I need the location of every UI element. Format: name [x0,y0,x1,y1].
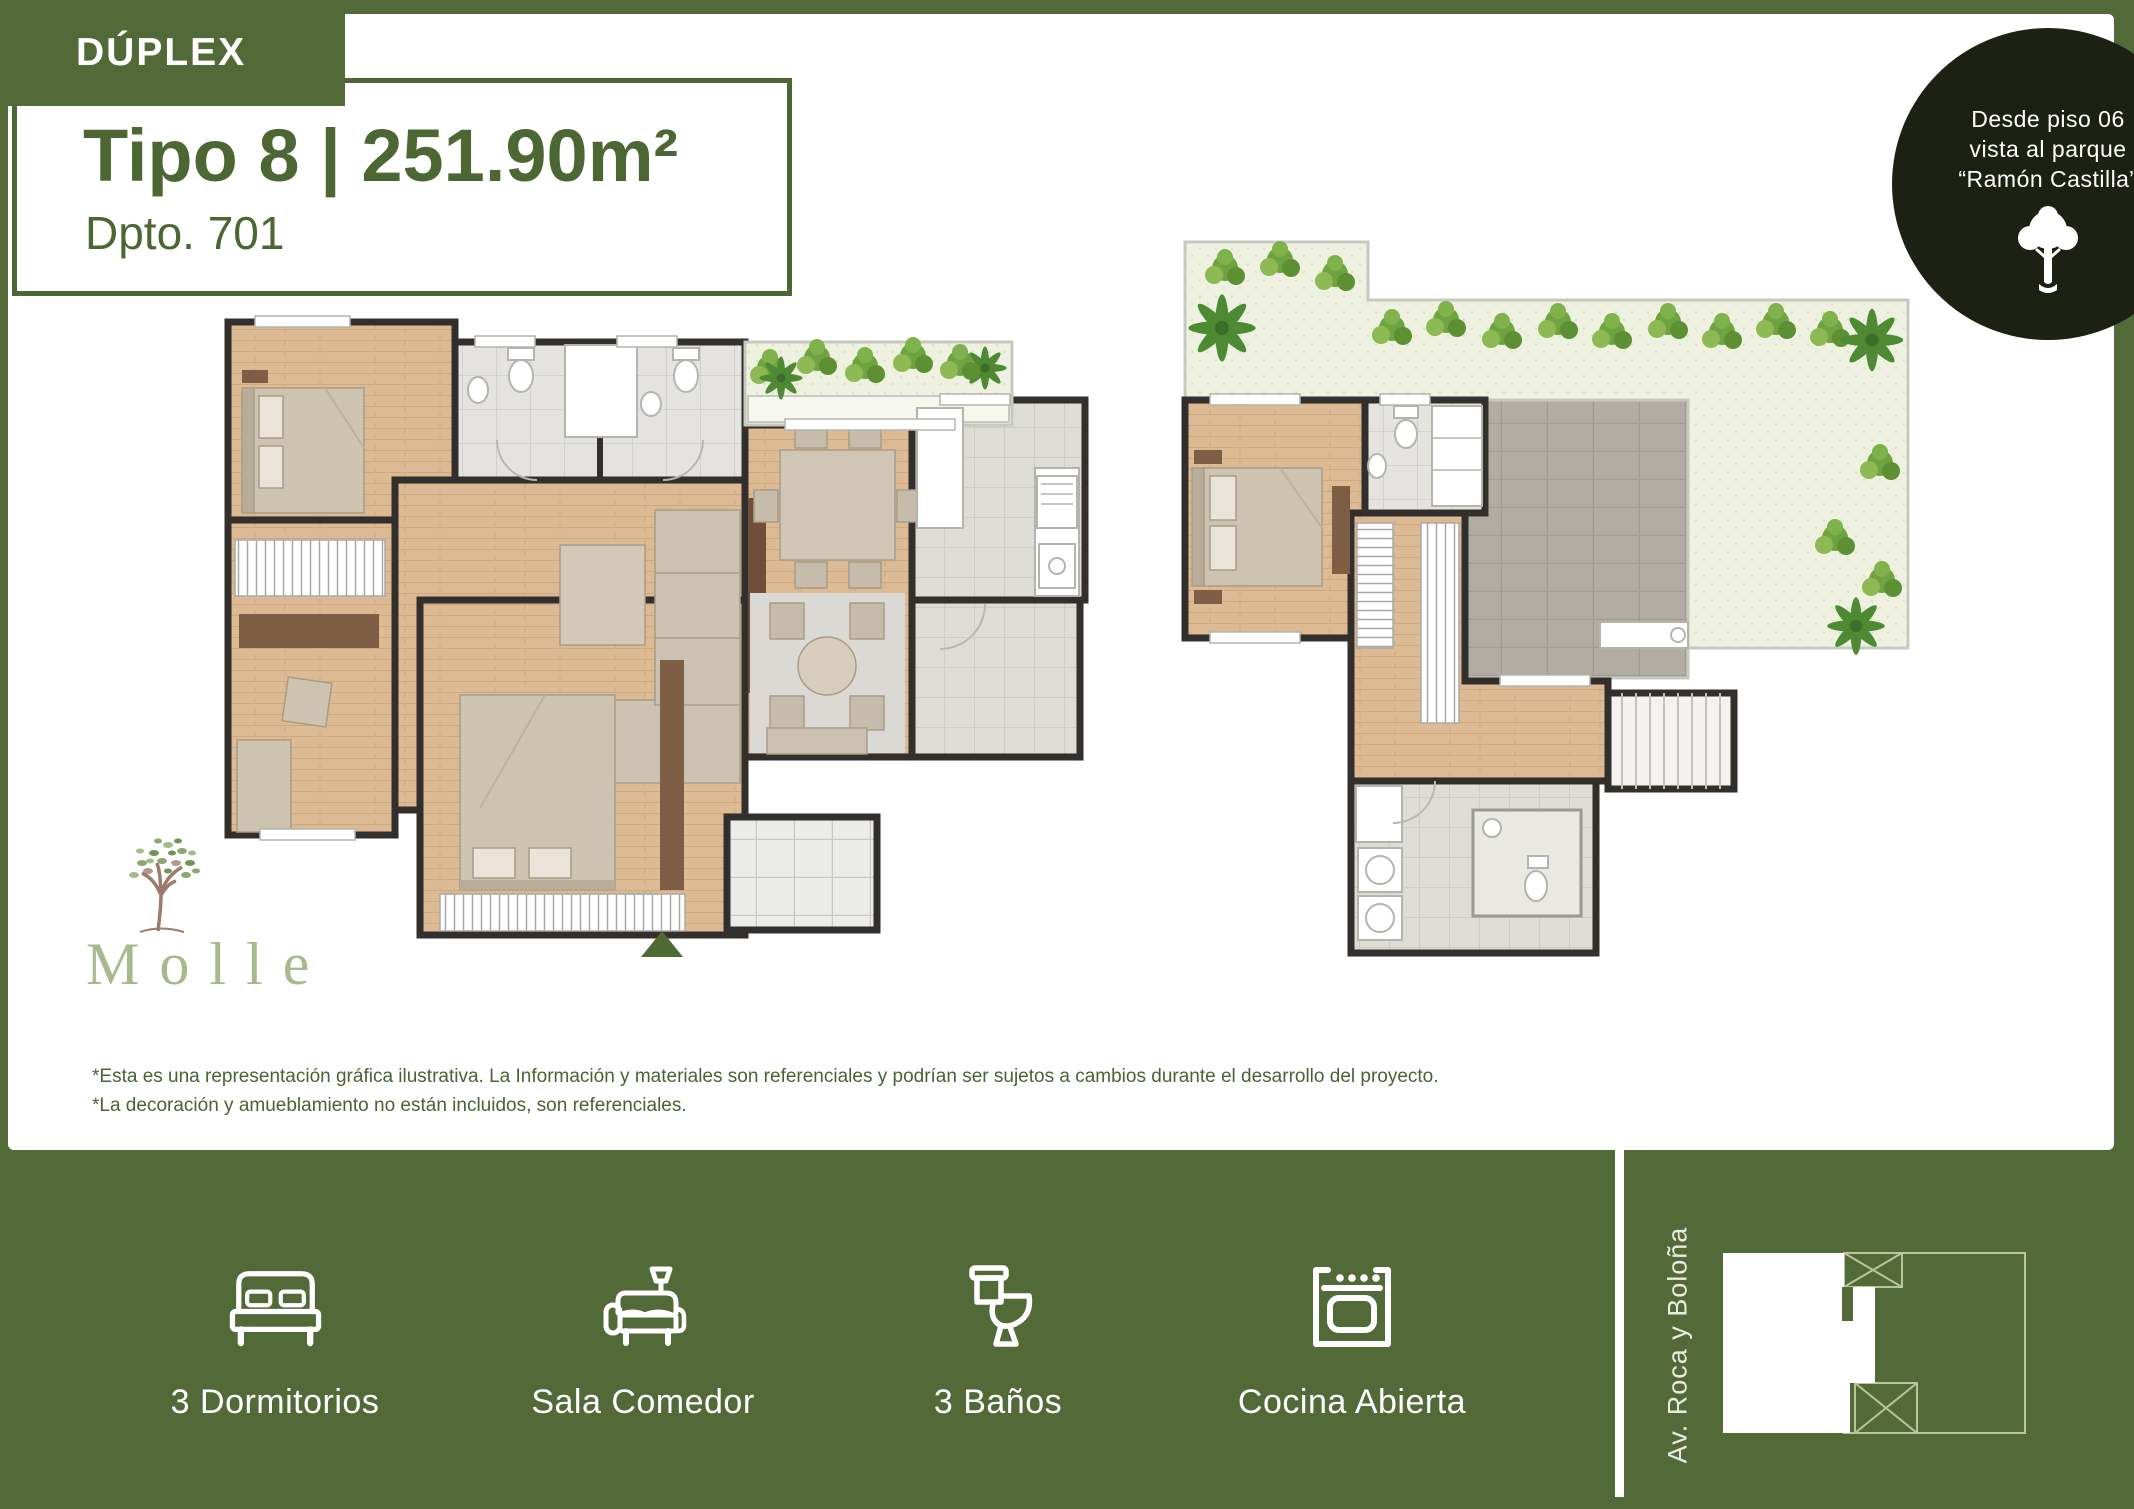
location-map [1723,1251,2033,1442]
disclaimer: *Esta es una representación gráfica ilus… [92,1062,1439,1120]
badge-line-1: Desde piso 06 [1892,104,2134,134]
amenity-label: Sala Comedor [463,1383,823,1422]
page-title: Tipo 8 | 251.90m² [83,113,787,198]
toilet-icon [818,1255,1178,1365]
floor-plan-level-1 [228,316,1085,957]
disclaimer-line-1: *Esta es una representación gráfica ilus… [92,1062,1439,1091]
brochure-page: DÚPLEX Tipo 8 | 251.90m² Dpto. 701 Desde… [0,0,2134,1509]
amenity-bathrooms: 3 Baños [818,1255,1178,1422]
badge-line-3: “Ramón Castilla” [1892,164,2134,194]
stove-icon [1172,1255,1532,1365]
category-banner: DÚPLEX [0,0,345,106]
floor-plan-level-2 [1185,241,1908,953]
category-label: DÚPLEX [0,0,345,75]
badge-line-2: vista al parque [1892,134,2134,164]
amenity-label: Cocina Abierta [1172,1383,1532,1422]
tree-icon [2015,206,2081,294]
amenity-label: 3 Baños [818,1383,1178,1422]
amenity-kitchen: Cocina Abierta [1172,1255,1532,1422]
park-view-badge: Desde piso 06 vista al parque “Ramón Cas… [1892,28,2134,340]
amenity-bedrooms: 3 Dormitorios [95,1255,455,1422]
street-label: Av. Roca y Boloña [1663,1227,1694,1464]
amenity-living-dining: Sala Comedor [463,1255,823,1422]
bed-icon [95,1255,455,1365]
band-divider [1615,1150,1624,1497]
brand-name: Molle [86,930,329,999]
unit-number: Dpto. 701 [85,206,787,260]
brand-tree-logo [129,839,200,933]
sofa-icon [463,1255,823,1365]
title-box: Tipo 8 | 251.90m² Dpto. 701 [12,78,792,296]
disclaimer-line-2: *La decoración y amueblamiento no están … [92,1091,1439,1120]
amenity-label: 3 Dormitorios [95,1383,455,1422]
